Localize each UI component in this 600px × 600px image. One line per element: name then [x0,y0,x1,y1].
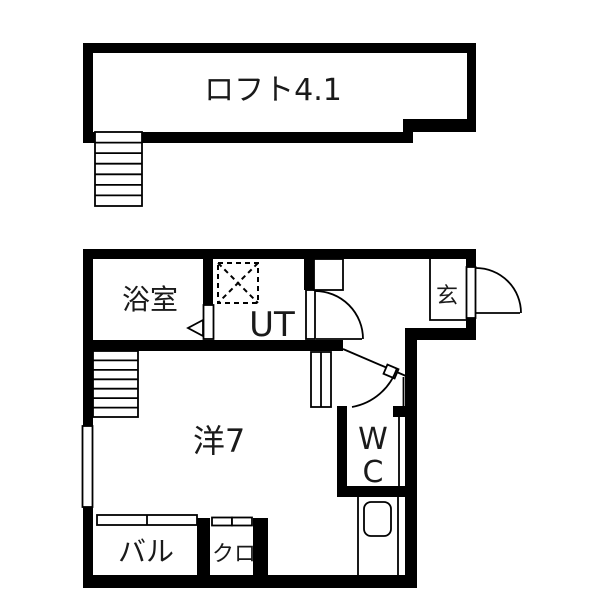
closet-doors [212,518,252,526]
balcony-window [97,515,197,525]
main-stairs [93,351,138,417]
sliding-partition [311,352,331,407]
wc-label-line2: C [363,455,384,490]
floor-plan-page: ロフト4.1 [0,0,600,600]
closet-label: クロ [212,542,256,567]
western-room-label: 洋7 [193,422,245,460]
utility-label: UT [249,305,295,345]
bathroom-label: 浴室 [122,283,178,316]
wc-label-line1: W [358,422,388,457]
balcony-label: バル [118,535,174,568]
shoe-cabinet [314,259,343,290]
loft-label: ロフト4.1 [204,73,342,108]
entrance-label: 玄 [436,284,458,309]
floor-plan-svg: ロフト4.1 [0,0,600,600]
loft-stairs [95,132,142,206]
window-left [83,426,93,507]
